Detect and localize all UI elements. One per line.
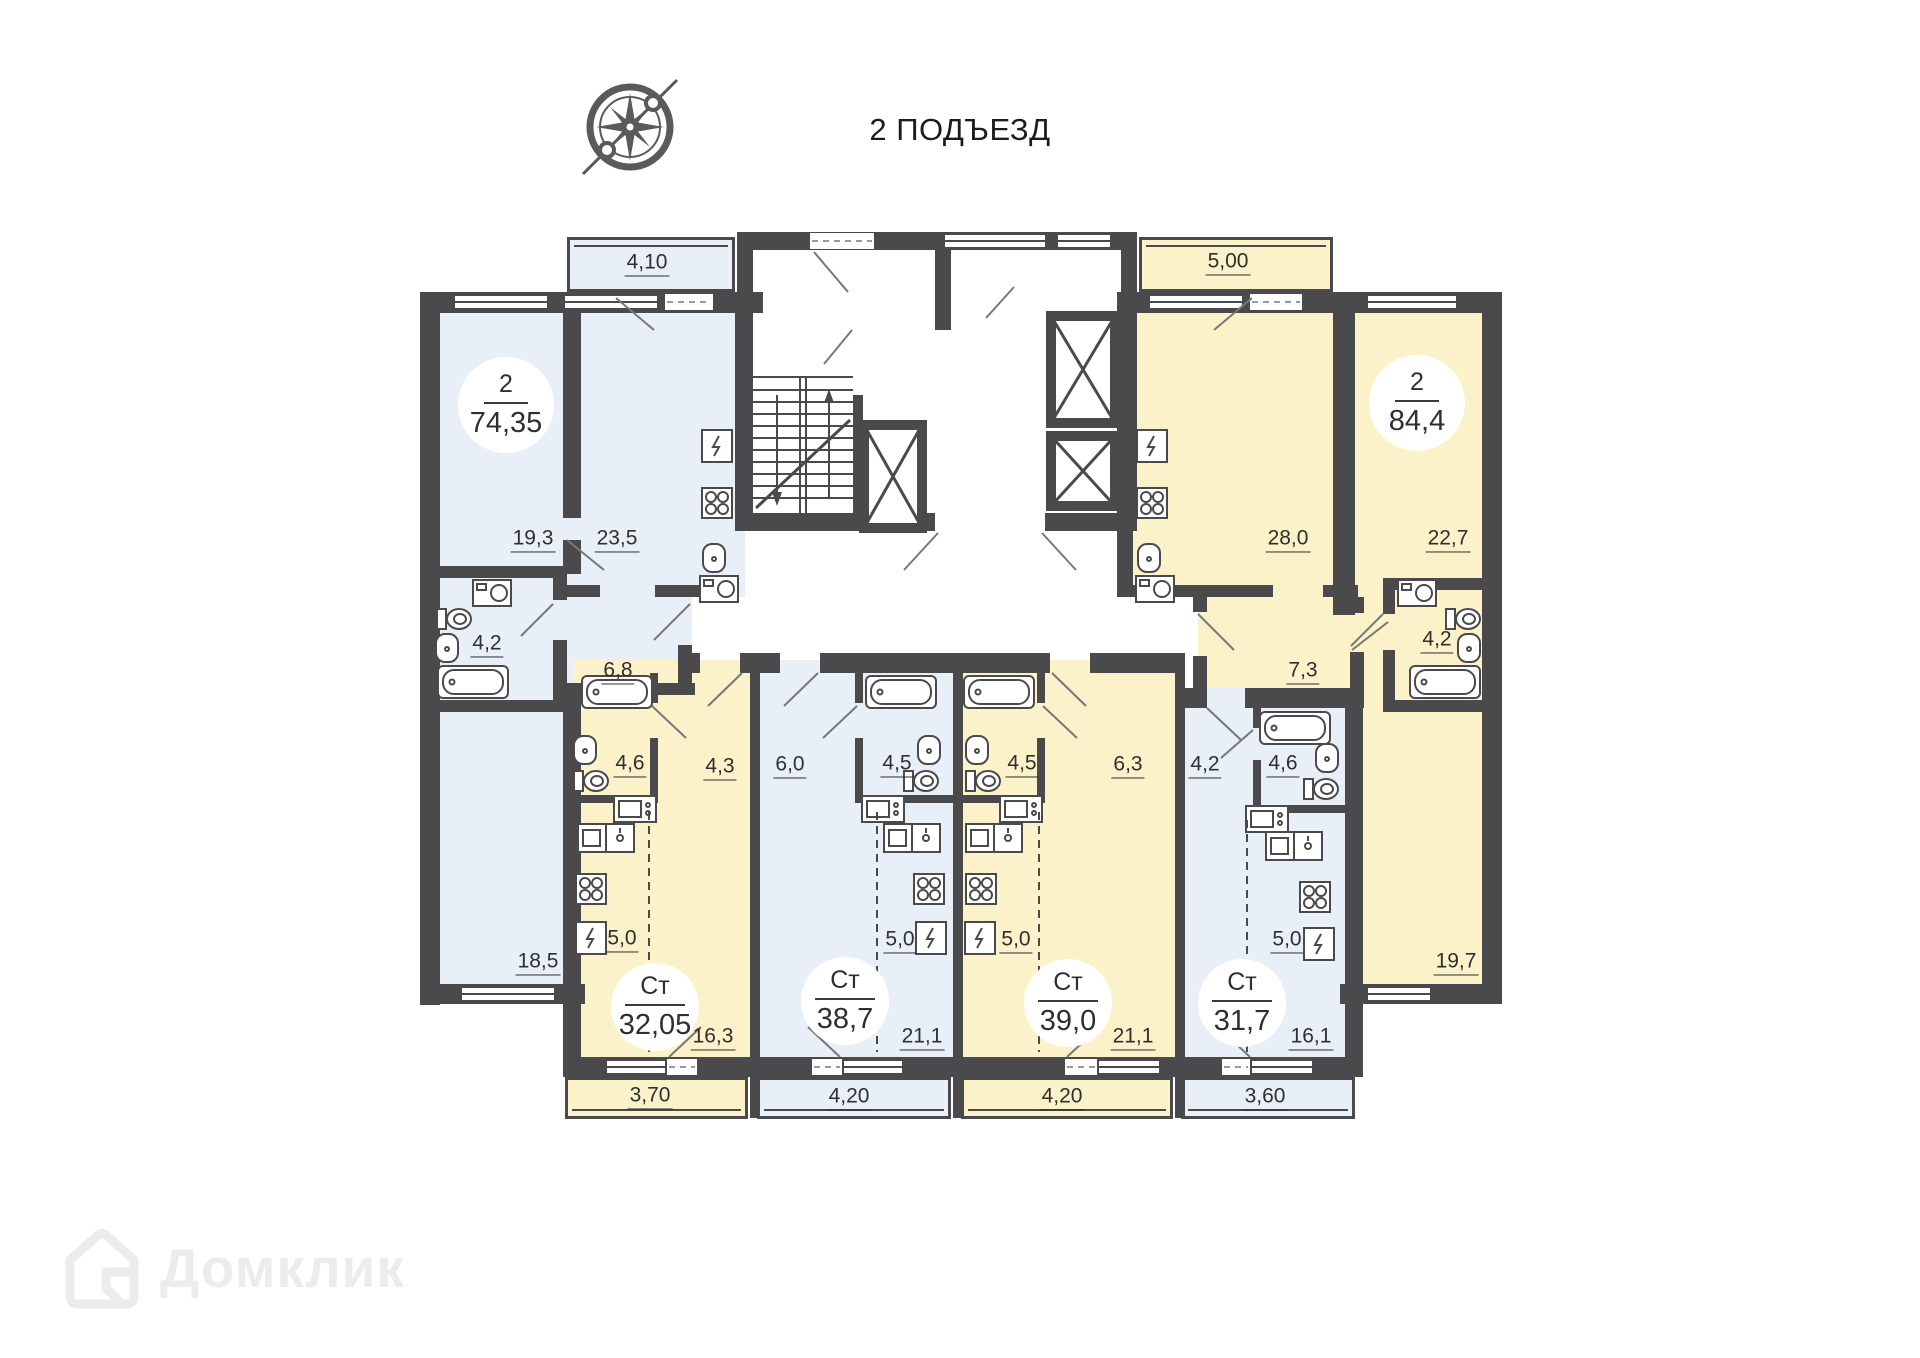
kitchen-sink-icon xyxy=(884,824,940,852)
badge-area: 74,35 xyxy=(470,404,543,440)
stove-icon xyxy=(966,874,996,904)
sink-icon xyxy=(1316,744,1338,772)
floor-plan-page: 2 ПОДЪЕЗД xyxy=(0,0,1920,1358)
stove-icon xyxy=(914,874,944,904)
electric-panel-icon xyxy=(916,922,946,954)
badge-area: 84,4 xyxy=(1389,402,1445,438)
room-area-label: 16,1 xyxy=(1289,1025,1334,1050)
electric-panel-icon xyxy=(576,922,606,954)
sink-icon xyxy=(1458,634,1480,662)
room-area-label: 19,3 xyxy=(511,527,556,552)
room-area-label: 4,20 xyxy=(827,1085,872,1110)
microwave-icon xyxy=(1000,796,1042,822)
room-area-label: 4,6 xyxy=(1266,752,1299,777)
room-area-label: 3,70 xyxy=(628,1084,673,1109)
room-area-label: 6,3 xyxy=(1111,753,1144,778)
room-area-label: 4,10 xyxy=(625,251,670,276)
electric-panel-icon xyxy=(1304,928,1334,960)
apartment-badge[interactable]: 2 74,35 xyxy=(458,357,554,453)
washing-machine-icon xyxy=(1136,576,1174,602)
toilet-icon xyxy=(1446,609,1480,629)
toilet-icon xyxy=(437,609,471,629)
kitchen-zone-dashes xyxy=(649,812,1247,1052)
sink-icon xyxy=(966,736,988,764)
fixtures xyxy=(436,430,1480,960)
bathtub-icon xyxy=(1260,712,1330,744)
electric-panel-icon xyxy=(965,922,995,954)
room-area-label: 5,0 xyxy=(605,927,638,952)
apartment-badge[interactable]: Ст 39,0 xyxy=(1024,959,1112,1047)
stove-icon xyxy=(1300,882,1330,912)
kitchen-sink-icon xyxy=(1266,832,1322,860)
room-area-label: 4,2 xyxy=(470,632,503,657)
room-area-label: 16,3 xyxy=(691,1025,736,1050)
badge-rooms: Ст xyxy=(815,966,875,1000)
sink-icon xyxy=(574,736,596,764)
toilet-icon xyxy=(574,771,608,791)
room-area-label: 21,1 xyxy=(900,1025,945,1050)
room-area-label: 3,60 xyxy=(1243,1085,1288,1110)
electric-panel-icon xyxy=(702,430,732,462)
room-area-label: 5,0 xyxy=(883,928,916,953)
elevator-shaft xyxy=(864,316,1115,528)
stove-icon xyxy=(1137,488,1167,518)
toilet-icon xyxy=(1304,779,1338,799)
room-area-label: 18,5 xyxy=(516,950,561,975)
badge-area: 39,0 xyxy=(1040,1002,1096,1038)
compass-icon xyxy=(575,72,685,182)
electric-panel-icon xyxy=(1137,430,1167,462)
apartment-badge[interactable]: Ст 31,7 xyxy=(1198,959,1286,1047)
plan-details xyxy=(0,0,1920,1358)
kitchen-sink-icon xyxy=(966,824,1022,852)
sink-icon xyxy=(918,736,940,764)
room-area-label: 22,7 xyxy=(1426,527,1471,552)
badge-rooms: 2 xyxy=(484,370,528,404)
apartment-badge[interactable]: 2 84,4 xyxy=(1369,355,1465,451)
bathtub-icon xyxy=(866,676,936,708)
sink-icon xyxy=(1138,544,1160,572)
washing-machine-icon xyxy=(700,576,738,602)
room-area-label: 5,0 xyxy=(1270,928,1303,953)
room-area-label: 4,2 xyxy=(1420,628,1453,653)
stove-icon xyxy=(702,488,732,518)
microwave-icon xyxy=(862,796,904,822)
badge-rooms: Ст xyxy=(1038,968,1098,1002)
room-area-label: 4,3 xyxy=(703,755,736,780)
room-area-label: 19,7 xyxy=(1434,950,1479,975)
door-swings xyxy=(521,252,1388,1057)
washing-machine-icon xyxy=(1398,580,1436,606)
badge-rooms: Ст xyxy=(1212,968,1272,1002)
apartment-badge[interactable]: Ст 38,7 xyxy=(801,957,889,1045)
staircase xyxy=(753,377,853,513)
badge-area: 31,7 xyxy=(1214,1002,1270,1038)
apartment-badge[interactable]: Ст 32,05 xyxy=(611,963,699,1051)
room-area-label: 4,20 xyxy=(1040,1085,1085,1110)
badge-area: 38,7 xyxy=(817,1000,873,1036)
room-area-label: 4,6 xyxy=(613,752,646,777)
room-area-label: 28,0 xyxy=(1266,527,1311,552)
room-area-label: 4,5 xyxy=(1005,752,1038,777)
badge-rooms: Ст xyxy=(625,972,685,1006)
entrance-title: 2 ПОДЪЕЗД xyxy=(869,112,1050,148)
toilet-icon xyxy=(966,771,1000,791)
kitchen-sink-icon xyxy=(578,824,634,852)
room-area-label: 5,0 xyxy=(999,928,1032,953)
room-area-label: 4,2 xyxy=(1188,753,1221,778)
room-area-label: 6,0 xyxy=(773,753,806,778)
room-area-label: 6,8 xyxy=(601,659,634,684)
bathtub-icon xyxy=(964,676,1034,708)
room-area-label: 7,3 xyxy=(1286,659,1319,684)
bathtub-icon xyxy=(1410,666,1480,698)
room-area-label: 4,5 xyxy=(880,752,913,777)
washing-machine-icon xyxy=(473,580,511,606)
room-area-label: 23,5 xyxy=(595,527,640,552)
badge-rooms: 2 xyxy=(1395,368,1439,402)
badge-area: 32,05 xyxy=(619,1006,692,1042)
sink-icon xyxy=(436,634,458,662)
room-area-label: 21,1 xyxy=(1111,1025,1156,1050)
stove-icon xyxy=(576,874,606,904)
bathtub-icon xyxy=(438,666,508,698)
sink-icon xyxy=(703,544,725,572)
room-area-label: 5,00 xyxy=(1206,250,1251,275)
microwave-icon xyxy=(1246,806,1288,832)
